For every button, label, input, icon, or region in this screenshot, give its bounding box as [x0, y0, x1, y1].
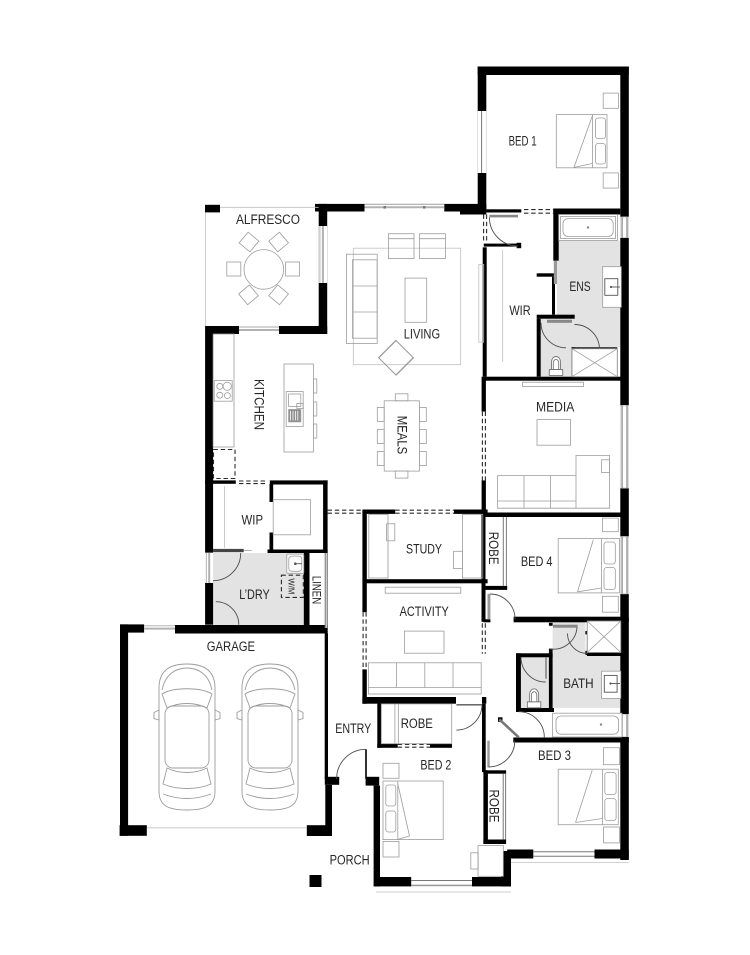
svg-text:BED 3: BED 3	[538, 748, 571, 763]
svg-text:GARAGE: GARAGE	[207, 639, 255, 654]
svg-text:BED 4: BED 4	[521, 554, 553, 569]
svg-text:PORCH: PORCH	[330, 852, 370, 867]
svg-text:W/M: W/M	[286, 578, 296, 594]
svg-text:WIR: WIR	[509, 303, 530, 318]
svg-text:MEDIA: MEDIA	[536, 400, 574, 415]
svg-text:L’DRY: L’DRY	[239, 587, 270, 602]
svg-text:WIP: WIP	[242, 512, 264, 527]
svg-text:ROBE: ROBE	[487, 790, 502, 823]
svg-text:BATH: BATH	[563, 676, 593, 691]
svg-text:ROBE: ROBE	[401, 716, 433, 731]
svg-text:BED 2: BED 2	[420, 758, 451, 773]
svg-text:BED 1: BED 1	[509, 133, 537, 148]
svg-text:ROBE: ROBE	[486, 532, 501, 565]
svg-text:ENTRY: ENTRY	[335, 721, 371, 736]
svg-text:LIVING: LIVING	[404, 327, 440, 342]
svg-text:ALFRESCO: ALFRESCO	[236, 212, 300, 227]
svg-text:LINEN: LINEN	[310, 576, 322, 604]
svg-text:KITCHEN: KITCHEN	[252, 379, 267, 430]
svg-text:STUDY: STUDY	[406, 541, 442, 556]
svg-text:ACTIVITY: ACTIVITY	[400, 604, 449, 619]
svg-text:MEALS: MEALS	[395, 416, 410, 455]
svg-text:ENS: ENS	[569, 279, 590, 294]
